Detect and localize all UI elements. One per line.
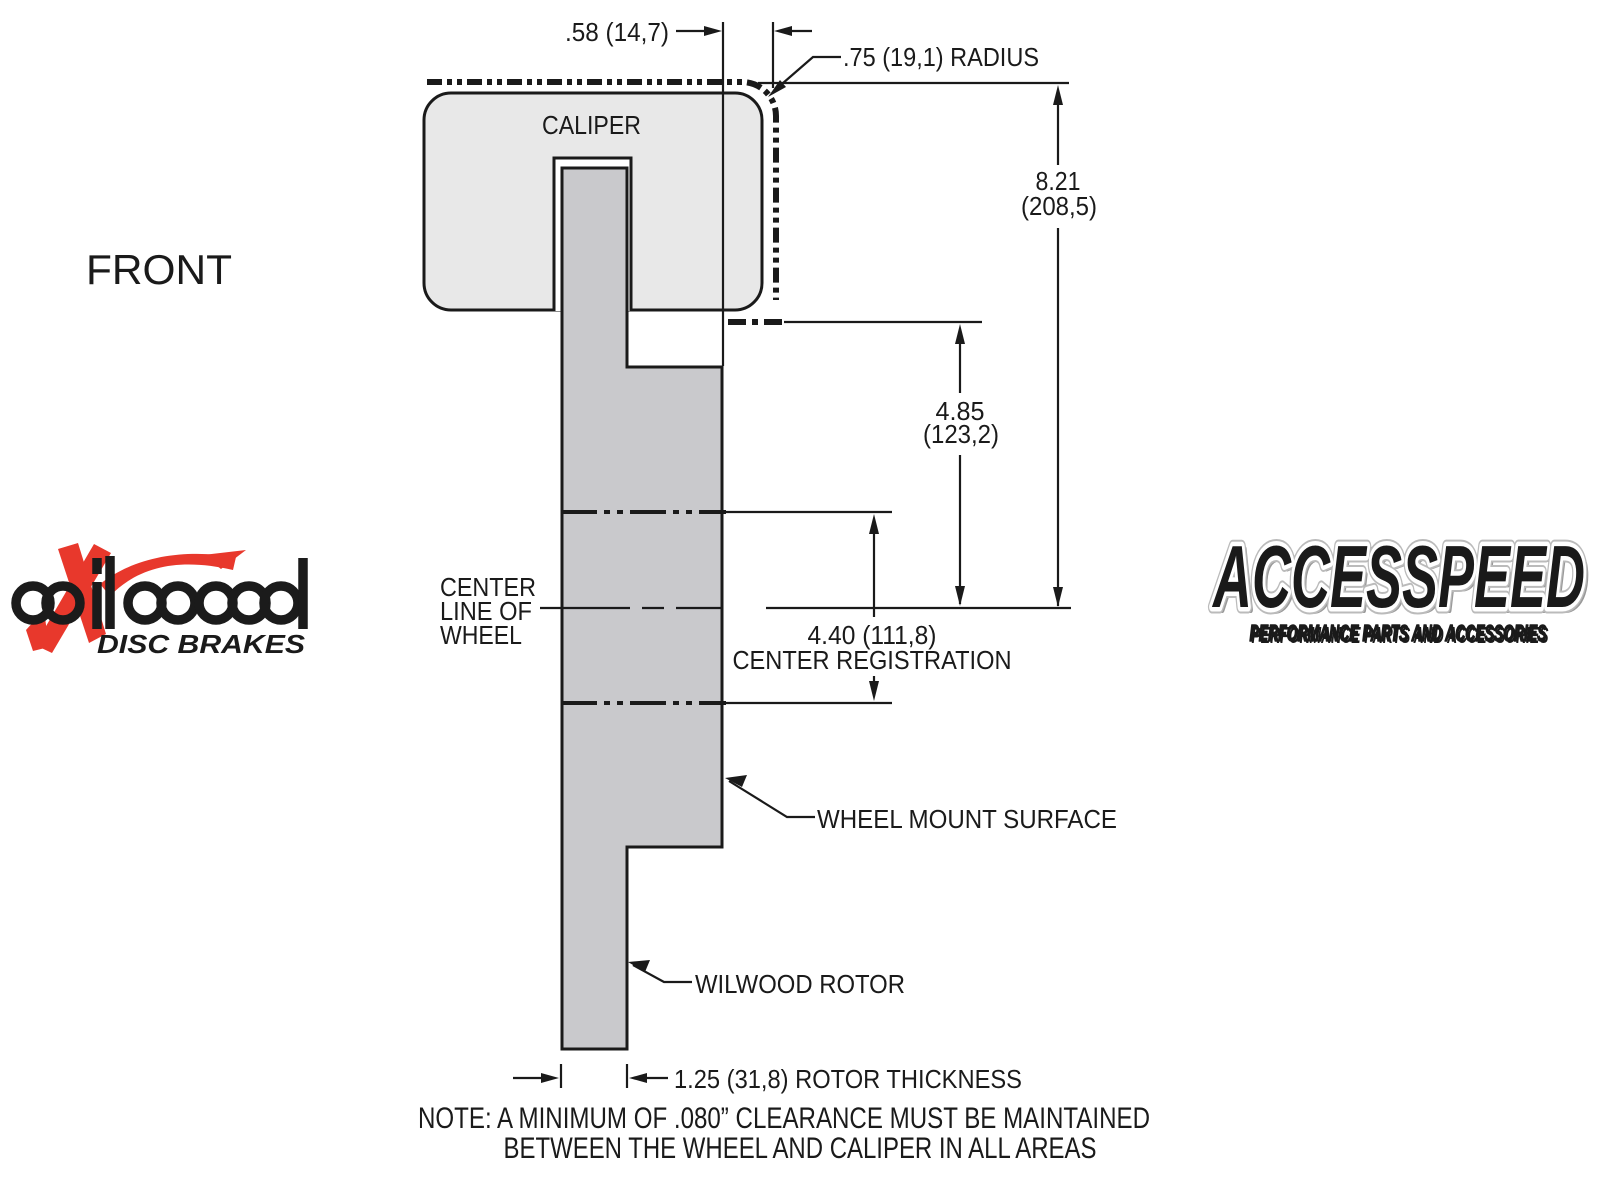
svg-text:WHEEL: WHEEL [440,620,522,650]
svg-text:(123,2): (123,2) [923,419,999,449]
svg-text:NOTE: A MINIMUM OF .080” CLEAR: NOTE: A MINIMUM OF .080” CLEARANCE MUST … [418,1102,1150,1135]
svg-text:CALIPER: CALIPER [542,110,641,140]
svg-text:ACCESSPEED: ACCESSPEED [1212,527,1585,626]
svg-text:WILWOOD ROTOR: WILWOOD ROTOR [695,969,905,999]
svg-text:FRONT: FRONT [86,246,232,293]
svg-text:CENTER REGISTRATION: CENTER REGISTRATION [733,645,1012,675]
svg-text:DISC BRAKES: DISC BRAKES [97,629,306,659]
svg-text:(208,5): (208,5) [1021,191,1097,221]
svg-text:WHEEL MOUNT SURFACE: WHEEL MOUNT SURFACE [817,804,1117,834]
svg-text:.58 (14,7): .58 (14,7) [565,17,669,47]
svg-text:BETWEEN THE WHEEL AND CALIPER: BETWEEN THE WHEEL AND CALIPER IN ALL ARE… [504,1132,1097,1165]
svg-text:.75 (19,1) RADIUS: .75 (19,1) RADIUS [843,42,1039,72]
svg-text:PERFORMANCE PARTS AND ACCESSOR: PERFORMANCE PARTS AND ACCESSORIES [1250,620,1547,646]
svg-text:1.25 (31,8) ROTOR THICKNESS: 1.25 (31,8) ROTOR THICKNESS [674,1064,1022,1094]
